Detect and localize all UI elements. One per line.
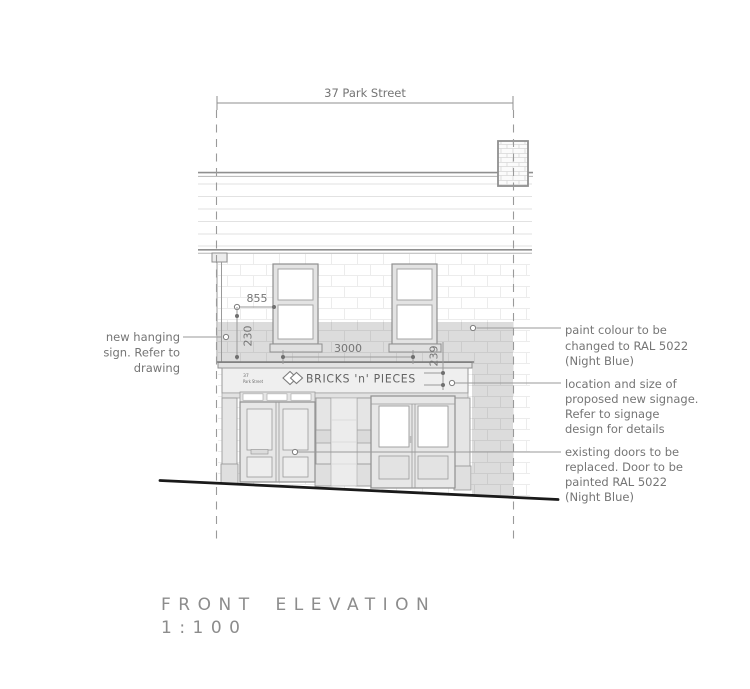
annotation-line: painted RAL 5022	[565, 475, 667, 489]
annotation-line: sign. Refer to	[103, 346, 180, 360]
door-glass	[379, 406, 409, 447]
annotation-line: drawing	[134, 361, 180, 375]
door-left	[240, 402, 315, 482]
street-dimension: 37 Park Street	[217, 86, 513, 110]
transom-lights	[240, 392, 315, 402]
dim-855-label: 855	[247, 292, 268, 305]
annotation-line: (Night Blue)	[565, 354, 634, 368]
annotation-line: proposed new signage.	[565, 392, 698, 406]
dim-230-label: 230	[242, 326, 255, 347]
centre-pier	[331, 398, 357, 486]
drawing-scale: 1:100	[161, 618, 248, 638]
door-panel	[247, 457, 272, 477]
upper-sash	[397, 269, 432, 300]
street-dimension-label: 37 Park Street	[324, 86, 406, 100]
annotation-line: location and size of	[565, 377, 678, 391]
annotation-line: new hanging	[106, 330, 180, 344]
annotation-line: existing doors to be	[565, 445, 679, 459]
door-glass	[418, 406, 448, 447]
door-right	[371, 396, 455, 488]
dim-3000-label: 3000	[334, 342, 362, 355]
door-panel	[283, 457, 308, 477]
drawing-title: FRONT ELEVATION	[161, 595, 436, 615]
gutter-line	[198, 250, 532, 253]
plaque-number: 37	[243, 373, 249, 379]
window-left	[270, 264, 322, 352]
chimney	[498, 141, 528, 186]
door-panel	[418, 456, 448, 479]
lower-sash	[397, 305, 432, 339]
door-panel	[379, 456, 409, 479]
annotation-line: replaced. Door to be	[565, 460, 683, 474]
door-panel	[283, 409, 308, 450]
shop-sign-text: BRICKS 'n' PIECES	[306, 372, 416, 386]
letterbox	[251, 450, 268, 455]
elevation-drawing: 37 Park Street BRICKS 'n' PIECES 37 Park…	[0, 0, 750, 689]
roof	[198, 173, 533, 246]
annotation-line: paint colour to be	[565, 323, 667, 337]
annotation-line: changed to RAL 5022	[565, 339, 688, 353]
annotation-hanging-sign: new hanging sign. Refer to drawing	[103, 330, 180, 375]
door-panel	[247, 409, 272, 450]
annotation-line: design for details	[565, 422, 665, 436]
annotation-paint: paint colour to be changed to RAL 5022 (…	[565, 323, 688, 368]
window-right	[389, 264, 441, 352]
annotation-line: Refer to signage	[565, 407, 659, 421]
annotation-doors: existing doors to be replaced. Door to b…	[565, 445, 683, 504]
lower-sash	[278, 305, 313, 339]
shopfront: 37 Park Street BRICKS 'n' PIECES	[216, 362, 474, 490]
title-block: FRONT ELEVATION 1:100	[161, 595, 436, 638]
front-elevation-svg: 37 Park Street BRICKS 'n' PIECES 37 Park…	[0, 0, 750, 689]
window-sill	[270, 344, 322, 352]
annotation-signage: location and size of proposed new signag…	[565, 377, 698, 436]
plaque-street: Park Street	[243, 379, 263, 385]
door-latch	[409, 436, 412, 443]
annotation-line: (Night Blue)	[565, 490, 634, 504]
dim-239-label: 239	[428, 346, 441, 367]
upper-sash	[278, 269, 313, 300]
